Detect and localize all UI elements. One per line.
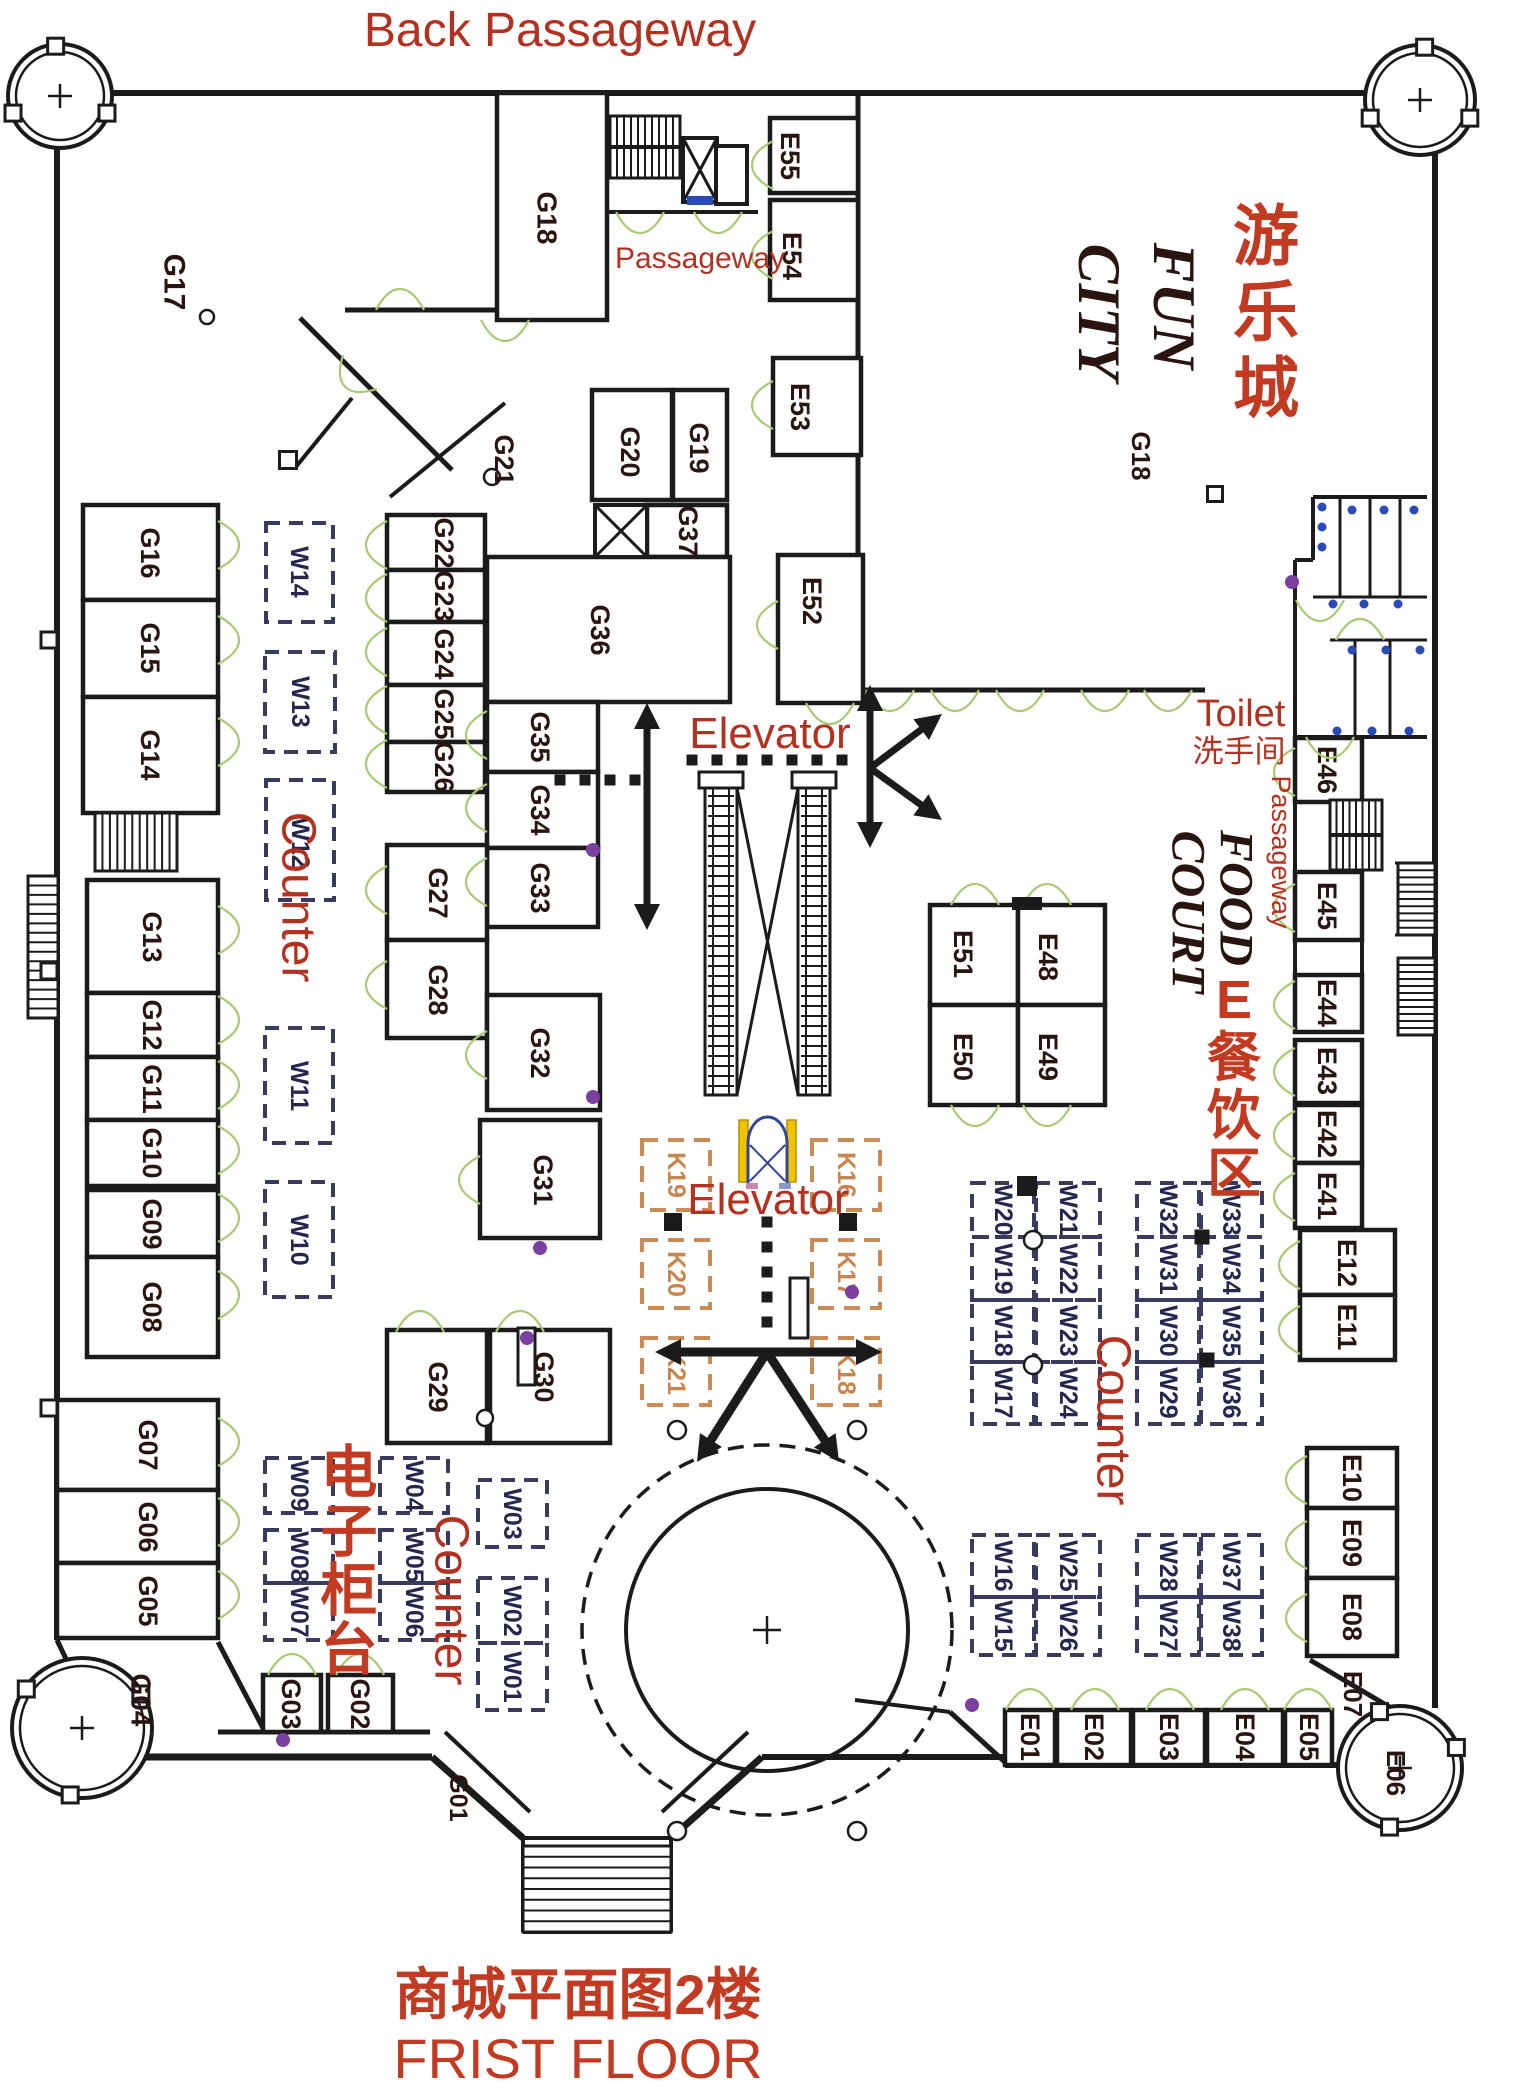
toilet-fixture <box>1416 646 1425 655</box>
counter-label-W25: W25 <box>1054 1540 1082 1592</box>
door-arc-path <box>1336 619 1384 640</box>
text-title-cn: 商城平面图2楼 <box>394 1963 761 2026</box>
toilet-fixture <box>1382 646 1391 655</box>
arrow-head <box>857 822 883 848</box>
counter-label-W10: W10 <box>285 1214 313 1265</box>
room-label-G15: G15 <box>135 622 165 673</box>
service-desk <box>790 1278 808 1338</box>
text-food-area-cn: E <box>1216 970 1252 1030</box>
room-label-G23: G23 <box>429 570 459 621</box>
door-arc-path <box>376 289 424 310</box>
text-city: CITY <box>1066 244 1132 386</box>
room-label-E02: E02 <box>1079 1713 1109 1761</box>
room-label-E50: E50 <box>948 1033 978 1081</box>
door-arc <box>366 866 387 914</box>
door-arc-path <box>1286 1521 1307 1569</box>
utility-dot <box>586 843 600 857</box>
room-label-G14: G14 <box>135 729 165 780</box>
arrow-shaft <box>708 1352 767 1445</box>
door-arc-path <box>218 906 239 954</box>
stairs <box>28 876 58 1018</box>
door-arc <box>366 740 387 788</box>
room-label-G33: G33 <box>525 862 555 913</box>
utility-dot <box>533 1241 547 1255</box>
door-arc-path <box>218 1571 239 1619</box>
door-arc <box>951 1105 999 1126</box>
room-label-G16: G16 <box>135 527 165 578</box>
elevator-shaft <box>716 146 747 204</box>
door-arc <box>218 1571 239 1619</box>
door-arc-path <box>757 601 778 649</box>
text-passageway-right: Passageway <box>1266 775 1296 929</box>
plaza-column <box>668 1421 686 1439</box>
tower-post <box>1448 1739 1464 1755</box>
room-label-G32: G32 <box>525 1027 555 1078</box>
text-electronics-counter-cn: 子 <box>321 1500 378 1564</box>
door-arc-path <box>951 884 999 905</box>
column-marker <box>1017 1176 1037 1196</box>
room-label-G05: G05 <box>133 1575 163 1626</box>
room-label-G36: G36 <box>585 604 615 655</box>
door-arc <box>616 212 664 233</box>
door-arc <box>366 628 387 676</box>
counter-label-W32: W32 <box>1154 1184 1182 1235</box>
tower-post <box>1382 1819 1398 1835</box>
door-arc <box>1279 1241 1300 1289</box>
wall-post <box>1208 487 1223 502</box>
door-arc <box>366 961 387 1009</box>
tower-post <box>62 1787 78 1803</box>
room-label-E03: E03 <box>1154 1713 1184 1761</box>
door-arc <box>996 690 1044 711</box>
room-label-G20: G20 <box>615 426 645 477</box>
room-label-G08: G08 <box>137 1281 167 1332</box>
wall-post <box>41 963 57 979</box>
door-arc-path <box>1274 1173 1295 1221</box>
door-arc-path <box>1274 1048 1295 1096</box>
door-arc-path <box>218 1194 239 1242</box>
room-label-E53: E53 <box>785 383 815 431</box>
text-toilet-cn: 洗手间 <box>1193 734 1286 769</box>
counter-label-W14: W14 <box>285 546 313 598</box>
arrow-shaft <box>870 726 926 768</box>
room-label-G02: G02 <box>345 1678 375 1729</box>
toilet-fixture <box>1380 506 1389 515</box>
toilet-fixture <box>1368 727 1377 736</box>
door-arc-path <box>268 1654 316 1675</box>
room-label-E01: E01 <box>1015 1713 1045 1761</box>
room-label-E44: E44 <box>1312 979 1342 1027</box>
door-arc-path <box>1286 1456 1307 1504</box>
tower-post <box>18 1681 34 1697</box>
room-label-G34: G34 <box>525 784 555 835</box>
counter-label-W20: W20 <box>989 1184 1017 1235</box>
door-arc <box>218 906 239 954</box>
door-arc-path <box>1279 1241 1300 1289</box>
room-label-G29: G29 <box>423 1361 453 1412</box>
toilet-fixture <box>1333 727 1342 736</box>
door-arc-path <box>218 718 239 766</box>
door-arc-path <box>218 1498 239 1546</box>
room-label-E09: E09 <box>1337 1519 1367 1567</box>
door-arc <box>328 355 377 404</box>
room-label-G37: G37 <box>673 505 703 556</box>
text-fun-city-cn: 游 <box>1233 199 1299 273</box>
door-arc <box>366 686 387 734</box>
text-elevator-upper: Elevator <box>689 709 850 758</box>
escalator-cap <box>699 772 743 788</box>
counter-label-W28: W28 <box>1154 1540 1182 1592</box>
room-label-G13: G13 <box>137 911 167 962</box>
room-label-E12: E12 <box>1332 1239 1362 1287</box>
room-label-E42: E42 <box>1312 1110 1342 1158</box>
text-room-label-G18-fun-city: G18 <box>1126 431 1156 480</box>
room-label-G11: G11 <box>137 1064 167 1114</box>
text-food-area-cn: 饮 <box>1207 1086 1262 1146</box>
door-arc-path <box>218 521 239 569</box>
counter-label-W11: W11 <box>285 1061 313 1111</box>
door-arc <box>1023 1105 1071 1126</box>
room-label-G19: G19 <box>684 422 714 473</box>
door-arc <box>1274 981 1295 1029</box>
door-arc <box>218 996 239 1044</box>
kiosk-label-K20: K20 <box>662 1251 690 1297</box>
escalator-track <box>798 788 830 1095</box>
door-arc-path <box>1221 1689 1269 1710</box>
door-arc-path <box>752 381 773 429</box>
counter-label-W05: W05 <box>400 1531 428 1583</box>
room-label-E11: E11 <box>1332 1304 1362 1351</box>
door-arc-path <box>218 1271 239 1319</box>
door-arc <box>1274 1173 1295 1221</box>
room-label-E55: E55 <box>775 132 805 180</box>
text-counter-bottom: Counter <box>425 1515 478 1686</box>
counter-label-W34: W34 <box>1217 1243 1245 1295</box>
wall-post <box>280 452 297 469</box>
text-passageway-top: Passageway <box>615 242 785 275</box>
arrow-shaft <box>767 1352 828 1445</box>
counter-label-W16: W16 <box>989 1540 1017 1591</box>
door-arc <box>218 1418 239 1466</box>
counter-label-W29: W29 <box>1154 1367 1182 1418</box>
door-arc <box>218 616 239 664</box>
door-arc <box>459 1156 480 1204</box>
door-arc-path <box>218 996 239 1044</box>
wall-post <box>41 632 57 648</box>
room-label-E48: E48 <box>1033 933 1063 981</box>
column-marker <box>1200 1353 1215 1368</box>
room-label-E41: E41 <box>1312 1172 1342 1220</box>
wall <box>300 318 452 470</box>
door-arc-path <box>218 616 239 664</box>
door-arc-path <box>1006 1689 1054 1710</box>
counter-label-W06: W06 <box>400 1586 428 1637</box>
door-arc-path <box>1071 1689 1119 1710</box>
room-label-E10: E10 <box>1337 1454 1367 1502</box>
room-label-E49: E49 <box>1033 1033 1063 1081</box>
wall <box>295 398 352 468</box>
counter-label-W01: W01 <box>498 1651 526 1703</box>
door-arc <box>366 574 387 622</box>
tower-post <box>5 105 21 121</box>
toilet-fixture <box>1329 600 1338 609</box>
counter-label-W26: W26 <box>1054 1600 1082 1651</box>
door-arc-path <box>1023 1105 1071 1126</box>
door-arc <box>1286 1521 1307 1569</box>
toilet-fixture <box>1394 600 1403 609</box>
door-arc-path <box>481 320 529 341</box>
door-arc <box>218 1271 239 1319</box>
circle-marker <box>1024 1356 1042 1374</box>
escalator-track <box>705 788 737 1095</box>
path-dot <box>762 1267 773 1278</box>
room-label-G25: G25 <box>429 688 459 739</box>
room-label-G35: G35 <box>525 711 555 762</box>
door-arc-path <box>328 355 377 404</box>
utility-dot <box>845 1285 859 1299</box>
counter-label-W23: W23 <box>1054 1305 1082 1356</box>
door-arc <box>268 1654 316 1675</box>
door-arc-path <box>951 1105 999 1126</box>
tower-post <box>48 38 64 54</box>
door-arc <box>366 521 387 569</box>
counter-label-W15: W15 <box>989 1600 1017 1652</box>
counter-label-W38: W38 <box>1217 1600 1245 1652</box>
door-arc-path <box>694 212 742 233</box>
counter-label-W13: W13 <box>286 676 314 727</box>
door-arc <box>1146 1689 1194 1710</box>
door-arc-path <box>218 1061 239 1109</box>
room-label-E05: E05 <box>1294 1713 1324 1761</box>
counter-label-W02: W02 <box>498 1585 526 1636</box>
door-arc-path <box>366 521 387 569</box>
circle-marker <box>200 310 214 324</box>
tower-post <box>1462 110 1478 126</box>
door-arc <box>218 1126 239 1174</box>
text-elevator-lower: Elevator <box>687 1175 848 1224</box>
room-label-E08: E08 <box>1337 1593 1367 1641</box>
text-room-label-E07: E07 <box>1338 1671 1368 1717</box>
counter-label-W08: W08 <box>285 1531 313 1583</box>
arrow-shaft <box>870 768 926 808</box>
door-arc <box>218 1498 239 1546</box>
counter-label-W35: W35 <box>1217 1305 1245 1357</box>
kiosk-label-K19: K19 <box>662 1152 690 1198</box>
tower-post <box>99 105 115 121</box>
door-arc <box>951 884 999 905</box>
door-arc <box>1221 1689 1269 1710</box>
room-label-G24: G24 <box>429 628 459 679</box>
toilet-fixture <box>1318 523 1327 532</box>
room-label-E43: E43 <box>1312 1047 1342 1095</box>
circle-marker <box>1024 1231 1042 1249</box>
circle-marker <box>477 1410 493 1426</box>
room-label-G12: G12 <box>137 999 167 1050</box>
door-arc <box>1071 1689 1119 1710</box>
room-label-G22: G22 <box>429 517 459 568</box>
toilet-fixture <box>1360 600 1369 609</box>
door-arc-path <box>1274 981 1295 1029</box>
toilet-fixture <box>1348 646 1357 655</box>
path-dot <box>580 775 591 786</box>
door-arc-path <box>996 690 1044 711</box>
door-arc <box>1274 1048 1295 1096</box>
floor-plan-canvas: G16G15G14G13G12G11G10G09G08G07G06G05G03G… <box>0 0 1536 2092</box>
text-food-area-cn: 餐 <box>1207 1028 1262 1088</box>
toilet-fixture <box>1410 506 1419 515</box>
path-dot <box>762 1242 773 1253</box>
room-label-G09: G09 <box>137 1198 167 1249</box>
utility-dot <box>965 1698 979 1712</box>
door-arc <box>218 718 239 766</box>
room-label-G06: G06 <box>133 1501 163 1552</box>
escalator-cap <box>792 772 836 788</box>
tower-post <box>1417 39 1433 55</box>
text-room-label-G04: G04 <box>126 1674 157 1727</box>
counter-label-W27: W27 <box>1154 1600 1182 1651</box>
toilet-fixture <box>1405 727 1414 736</box>
room-label-E45: E45 <box>1312 882 1342 930</box>
room-label-E52: E52 <box>797 577 827 625</box>
plaza-column <box>668 1822 686 1840</box>
counter-label-W21: W21 <box>1054 1184 1082 1236</box>
door-arc-path <box>366 866 387 914</box>
wall-post <box>41 1400 57 1416</box>
tower-post <box>1362 110 1378 126</box>
wall <box>662 1732 748 1812</box>
counter-label-W09: W09 <box>285 1460 313 1511</box>
door-arc <box>1144 690 1192 711</box>
door-arc-path <box>366 961 387 1009</box>
arrow-head <box>634 904 660 930</box>
counter-label-W03: W03 <box>498 1488 526 1539</box>
door-arc <box>1006 1689 1054 1710</box>
door-arc <box>1286 1456 1307 1504</box>
door-arc-path <box>931 690 979 711</box>
door-arc <box>1284 1689 1332 1710</box>
plaza-column <box>848 1822 866 1840</box>
door-arc <box>218 1194 239 1242</box>
door-arc <box>694 212 742 233</box>
counter-label-W19: W19 <box>989 1243 1017 1294</box>
elevator-sill <box>687 196 713 205</box>
stairs <box>1398 958 1435 1035</box>
toilet-fixture <box>1318 543 1327 552</box>
counter-label-W31: W31 <box>1154 1243 1182 1295</box>
path-dot <box>762 1292 773 1303</box>
plaza-column <box>848 1421 866 1439</box>
room-label-G03: G03 <box>276 1678 306 1729</box>
door-arc <box>481 320 529 341</box>
counter-label-W04: W04 <box>400 1460 428 1512</box>
room-label-G07: G07 <box>133 1419 163 1470</box>
text-electronics-counter-cn: 电 <box>321 1441 378 1505</box>
door-arc <box>1279 1306 1300 1354</box>
text-electronics-counter-cn: 台 <box>321 1618 378 1682</box>
path-dot <box>630 775 641 786</box>
counter-label-W36: W36 <box>1217 1367 1245 1418</box>
counter-label-W22: W22 <box>1054 1243 1082 1294</box>
door-arc-path <box>1144 690 1192 711</box>
room-label-G31: G31 <box>528 1154 558 1205</box>
room-label-E04: E04 <box>1230 1713 1260 1761</box>
text-court: COURT <box>1162 831 1215 995</box>
door-arc <box>376 289 424 310</box>
door-arc <box>1081 690 1129 711</box>
arrow-head <box>634 703 660 729</box>
door-arc-path <box>1284 1689 1332 1710</box>
door-arc-path <box>218 1126 239 1174</box>
path-dot <box>555 775 566 786</box>
fixture <box>1012 897 1042 910</box>
path-dot <box>605 775 616 786</box>
room-label-G10: G10 <box>137 1127 167 1178</box>
door-arc-path <box>1081 690 1129 711</box>
counter-label-W18: W18 <box>989 1305 1017 1357</box>
utility-dot <box>276 1733 290 1747</box>
text-fun: FUN <box>1141 242 1207 372</box>
door-arc-path <box>366 628 387 676</box>
door-arc-path <box>218 1418 239 1466</box>
utility-dot <box>1285 575 1299 589</box>
utility-dot <box>520 1331 534 1345</box>
door-arc-path <box>1279 1306 1300 1354</box>
door-arc <box>752 381 773 429</box>
text-room-label-E06: E06 <box>1381 1750 1411 1796</box>
door-arc-path <box>459 1156 480 1204</box>
door-arc <box>1274 1111 1295 1159</box>
counter-label-W07: W07 <box>285 1586 313 1637</box>
door-arc-path <box>366 686 387 734</box>
toilet-fixture <box>1348 506 1357 515</box>
door-arc-path <box>616 212 664 233</box>
door-arc <box>1336 619 1384 640</box>
column-marker <box>1195 1230 1210 1245</box>
door-arc <box>1286 1594 1307 1642</box>
text-counter-right: Counter <box>1087 1335 1140 1506</box>
door-arc-path <box>366 574 387 622</box>
tower-post <box>1371 1704 1387 1720</box>
text-food: FOOD <box>1210 829 1263 966</box>
text-back-passageway: Back Passageway <box>364 4 756 57</box>
text-food-area-cn: 区 <box>1207 1144 1261 1204</box>
text-room-label-G01: G01 <box>444 1774 472 1821</box>
counter-label-W17: W17 <box>989 1367 1017 1418</box>
counter-label-W30: W30 <box>1154 1305 1182 1356</box>
stairs <box>95 813 177 871</box>
door-arc-path <box>1146 1689 1194 1710</box>
text-title-en: FRIST FLOOR <box>393 2027 762 2090</box>
toilet-fixture <box>1318 503 1327 512</box>
text-electronics-counter-cn: 柜 <box>321 1559 378 1623</box>
door-arc-path <box>366 740 387 788</box>
text-toilet-en: Toilet <box>1197 693 1286 735</box>
path-dot <box>762 1317 773 1328</box>
room-label-G26: G26 <box>429 741 459 792</box>
column-marker <box>664 1213 682 1231</box>
text-fun-city-cn: 乐 <box>1233 275 1299 349</box>
door-arc <box>757 601 778 649</box>
door-arc <box>218 521 239 569</box>
room-label-G27: G27 <box>423 867 453 918</box>
door-arc <box>218 1061 239 1109</box>
utility-dot <box>586 1090 600 1104</box>
text-room-label-G21: G21 <box>489 434 519 485</box>
room-label-G28: G28 <box>423 964 453 1015</box>
text-fun-city-cn: 城 <box>1233 351 1299 425</box>
wall <box>218 1642 263 1728</box>
counter-label-W24: W24 <box>1054 1367 1082 1419</box>
